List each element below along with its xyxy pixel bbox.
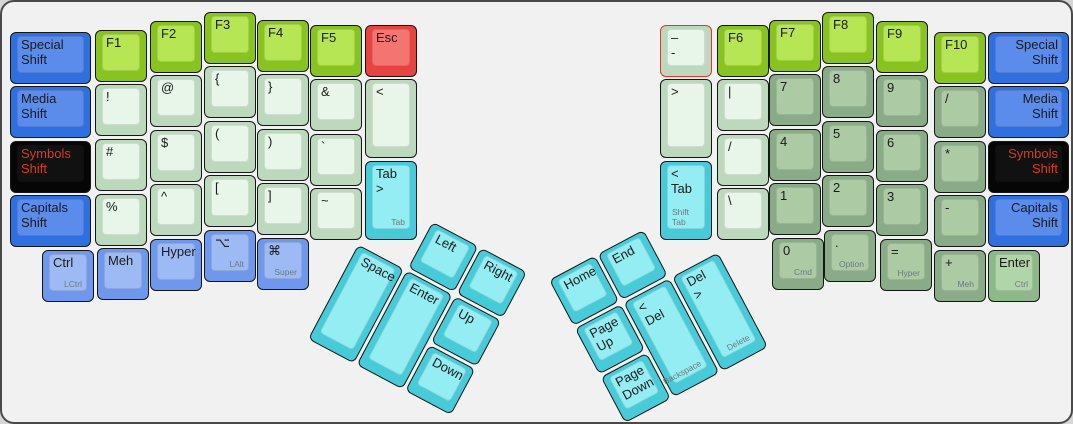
key-lbrace-label: { xyxy=(215,72,245,87)
key-f4-surface: F4 xyxy=(264,24,302,61)
key-0-sublabel: Cmd xyxy=(794,267,812,277)
key-tab-back[interactable]: < TabShift Tab xyxy=(660,161,712,240)
key-f3-label: F3 xyxy=(215,18,245,33)
key-media-shift-right[interactable]: Media Shift xyxy=(988,86,1069,138)
key-f7-label: F7 xyxy=(780,26,810,41)
key-tilde-label: ~ xyxy=(321,194,351,209)
key-exclamation-surface: ! xyxy=(102,88,140,125)
key-symbols-shift-right-surface: Symbols Shift xyxy=(995,145,1062,182)
key-tab-forward-sublabel: Tab xyxy=(391,217,405,227)
key-media-shift-left-surface: Media Shift xyxy=(17,90,84,127)
key-caret[interactable]: ^ xyxy=(150,184,202,236)
key-left-arrow-surface: Left xyxy=(419,229,470,280)
key-caret-surface: ^ xyxy=(157,188,195,225)
key-lparen[interactable]: ( xyxy=(204,121,256,173)
key-backslash-label: \ xyxy=(728,194,758,209)
key-tab-forward-label: Tab > xyxy=(376,167,406,196)
key-slash-surface: / xyxy=(724,138,762,175)
key-delete-sublabel: Delete xyxy=(725,332,751,352)
key-exclamation-label: ! xyxy=(106,90,136,105)
key-media-shift-left-label: Media Shift xyxy=(21,92,80,121)
key-at-label: @ xyxy=(161,81,191,96)
key-3-surface: 3 xyxy=(883,188,921,225)
key-f1-label: F1 xyxy=(106,36,136,51)
key-2[interactable]: 2 xyxy=(822,175,874,227)
key-pipe-label: | xyxy=(728,85,758,100)
key-tilde-surface: ~ xyxy=(317,192,355,229)
key-tab-back-sublabel: Shift Tab xyxy=(672,207,704,227)
key-4-label: 4 xyxy=(780,135,810,150)
key-0-surface: 0Cmd xyxy=(779,242,817,279)
key-equals[interactable]: =Hyper xyxy=(880,239,932,291)
key-6[interactable]: 6 xyxy=(876,130,928,182)
key-capitals-shift-right[interactable]: Capitals Shift xyxy=(988,195,1069,247)
key-9-label: 9 xyxy=(887,81,917,96)
key-f7[interactable]: F7 xyxy=(769,20,821,72)
key-lparen-label: ( xyxy=(215,127,245,142)
key-f5-label: F5 xyxy=(321,31,351,46)
key-minus-label: - xyxy=(945,201,975,216)
key-lalt[interactable]: ⌥LAlt xyxy=(204,230,256,282)
key-delete-label: Del > xyxy=(684,263,724,303)
key-f8-surface: F8 xyxy=(829,16,867,53)
key-f6-surface: F6 xyxy=(724,29,762,66)
keyboard-canvas: Special ShiftMedia ShiftSymbols ShiftCap… xyxy=(0,0,1073,424)
key-dash-selected[interactable]: – - xyxy=(660,25,712,77)
key-slash-numpad[interactable]: / xyxy=(934,86,986,138)
key-super-label: ⌘ xyxy=(268,244,298,259)
key-enter-right-sublabel: Ctrl xyxy=(1015,279,1028,289)
key-pipe-surface: | xyxy=(724,83,762,120)
key-plus[interactable]: +Meh xyxy=(934,250,986,302)
key-at[interactable]: @ xyxy=(150,75,202,127)
key-5-label: 5 xyxy=(833,127,863,142)
key-minus-surface: - xyxy=(941,199,979,236)
key-special-shift-left-surface: Special Shift xyxy=(17,36,84,73)
key-f4[interactable]: F4 xyxy=(257,20,309,72)
key-3[interactable]: 3 xyxy=(876,184,928,236)
key-tab-forward-surface: Tab >Tab xyxy=(372,165,410,229)
key-f9-label: F9 xyxy=(887,27,917,42)
key-f6[interactable]: F6 xyxy=(717,25,769,77)
key-capitals-shift-left-surface: Capitals Shift xyxy=(17,199,84,236)
key-backslash[interactable]: \ xyxy=(717,188,769,240)
key-f5[interactable]: F5 xyxy=(310,25,362,77)
key-media-shift-right-label: Media Shift xyxy=(999,92,1058,121)
key-5[interactable]: 5 xyxy=(822,121,874,173)
key-meh-left-surface: Meh xyxy=(104,252,142,289)
key-ctrl-left-label: Ctrl xyxy=(53,256,83,271)
key-less-than-label: < xyxy=(376,85,406,100)
key-symbols-shift-left-label: Symbols Shift xyxy=(21,147,80,176)
key-hyper-left-label: Hyper xyxy=(161,245,191,260)
key-6-surface: 6 xyxy=(883,134,921,171)
key-rbracket[interactable]: ] xyxy=(257,183,309,235)
key-home-surface: Home xyxy=(557,262,608,313)
key-backtick-surface: ` xyxy=(317,138,355,175)
key-pipe[interactable]: | xyxy=(717,79,769,131)
key-dollar-surface: $ xyxy=(157,134,195,171)
key-special-shift-right-label: Special Shift xyxy=(999,38,1058,67)
key-at-surface: @ xyxy=(157,79,195,116)
key-7[interactable]: 7 xyxy=(769,74,821,126)
key-7-surface: 7 xyxy=(776,78,814,115)
key-slash-numpad-label: / xyxy=(945,92,975,107)
key-page-up-surface: Page Up xyxy=(583,311,634,362)
key-7-label: 7 xyxy=(780,80,810,95)
key-f7-surface: F7 xyxy=(776,24,814,61)
key-less-than-surface: < xyxy=(372,83,410,147)
key-less-than[interactable]: < xyxy=(365,79,417,158)
key-lbrace-surface: { xyxy=(211,70,249,107)
key-dot-sublabel: Option xyxy=(839,259,864,269)
key-meh-left[interactable]: Meh xyxy=(97,248,149,300)
key-4[interactable]: 4 xyxy=(769,129,821,181)
key-rbrace-surface: } xyxy=(264,78,302,115)
key-backspace-sublabel: Backspace xyxy=(661,358,702,386)
key-end-label: End xyxy=(610,240,643,267)
key-lalt-surface: ⌥LAlt xyxy=(211,234,249,271)
key-left-arrow-label: Left xyxy=(433,232,466,259)
key-dollar-label: $ xyxy=(161,136,191,151)
key-page-down-surface: Page Down xyxy=(609,360,660,411)
key-f9-surface: F9 xyxy=(883,25,921,62)
key-plus-label: + xyxy=(945,256,975,271)
key-meh-left-label: Meh xyxy=(108,254,138,269)
key-lbracket[interactable]: [ xyxy=(204,175,256,227)
key-special-shift-right-surface: Special Shift xyxy=(995,36,1062,73)
key-1-label: 1 xyxy=(780,189,810,204)
key-0[interactable]: 0Cmd xyxy=(772,238,824,290)
key-plus-sublabel: Meh xyxy=(957,279,974,289)
key-f1[interactable]: F1 xyxy=(95,30,147,82)
key-8-surface: 8 xyxy=(829,70,867,107)
key-exclamation[interactable]: ! xyxy=(95,84,147,136)
key-8-label: 8 xyxy=(833,72,863,87)
key-media-shift-right-surface: Media Shift xyxy=(995,90,1062,127)
key-backspace-label: < Del xyxy=(636,289,676,329)
key-capitals-shift-left[interactable]: Capitals Shift xyxy=(10,195,91,247)
key-hash-surface: # xyxy=(102,143,140,180)
key-slash-label: / xyxy=(728,140,758,155)
key-9-surface: 9 xyxy=(883,79,921,116)
key-dot-label: . xyxy=(835,236,865,251)
key-f10-surface: F10 xyxy=(941,36,979,73)
key-greater-than[interactable]: > xyxy=(660,79,712,158)
key-equals-label: = xyxy=(891,245,921,260)
key-1[interactable]: 1 xyxy=(769,183,821,235)
key-home-label: Home xyxy=(562,266,595,293)
key-enter-right-surface: EnterCtrl xyxy=(995,254,1033,291)
key-0-label: 0 xyxy=(783,244,813,259)
key-f3[interactable]: F3 xyxy=(204,12,256,64)
key-rparen-label: ) xyxy=(268,135,298,150)
key-tilde[interactable]: ~ xyxy=(310,188,362,240)
key-equals-sublabel: Hyper xyxy=(897,268,920,278)
key-super-sublabel: Super xyxy=(274,267,297,277)
key-ampersand-label: & xyxy=(321,85,351,100)
key-page-down-label: Page Down xyxy=(613,363,653,403)
key-rparen-surface: ) xyxy=(264,133,302,170)
key-f3-surface: F3 xyxy=(211,16,249,53)
key-ampersand[interactable]: & xyxy=(310,79,362,131)
key-hyper-left[interactable]: Hyper xyxy=(150,239,202,291)
key-rbrace[interactable]: } xyxy=(257,74,309,126)
key-right-arrow-surface: Right xyxy=(468,254,519,305)
key-4-surface: 4 xyxy=(776,133,814,170)
key-enter-right-label: Enter xyxy=(999,256,1029,271)
key-percent-surface: % xyxy=(102,198,140,235)
key-dash-selected-surface: – - xyxy=(667,29,705,66)
key-super-surface: ⌘Super xyxy=(264,242,302,279)
key-plus-surface: +Meh xyxy=(941,254,979,291)
key-symbols-shift-right[interactable]: Symbols Shift xyxy=(988,141,1069,193)
key-ampersand-surface: & xyxy=(317,83,355,120)
key-f4-label: F4 xyxy=(268,26,298,41)
key-backtick-label: ` xyxy=(321,140,351,155)
key-f8-label: F8 xyxy=(833,18,863,33)
key-ctrl-left[interactable]: CtrlLCtrl xyxy=(42,250,94,302)
key-dash-selected-label: – - xyxy=(671,31,701,60)
key-f2-label: F2 xyxy=(161,27,191,42)
key-lalt-label: ⌥ xyxy=(215,236,245,251)
key-symbols-shift-left[interactable]: Symbols Shift xyxy=(10,141,91,193)
key-asterisk[interactable]: * xyxy=(934,141,986,193)
key-special-shift-left-label: Special Shift xyxy=(21,38,80,67)
key-equals-surface: =Hyper xyxy=(887,243,925,280)
key-capitals-shift-right-label: Capitals Shift xyxy=(999,201,1058,230)
key-special-shift-left[interactable]: Special Shift xyxy=(10,32,91,84)
key-enter-right[interactable]: EnterCtrl xyxy=(988,250,1040,302)
key-slash[interactable]: / xyxy=(717,134,769,186)
key-capitals-shift-left-label: Capitals Shift xyxy=(21,201,80,230)
key-ctrl-left-surface: CtrlLCtrl xyxy=(49,254,87,291)
key-capitals-shift-right-surface: Capitals Shift xyxy=(995,199,1062,236)
key-f8[interactable]: F8 xyxy=(822,12,874,64)
key-hyper-left-surface: Hyper xyxy=(157,243,195,280)
key-lalt-sublabel: LAlt xyxy=(229,259,244,269)
key-8[interactable]: 8 xyxy=(822,66,874,118)
key-asterisk-label: * xyxy=(945,147,975,162)
key-minus[interactable]: - xyxy=(934,195,986,247)
key-percent-label: % xyxy=(106,200,136,215)
key-lbrace[interactable]: { xyxy=(204,66,256,118)
key-f10[interactable]: F10 xyxy=(934,32,986,84)
key-slash-numpad-surface: / xyxy=(941,90,979,127)
key-percent[interactable]: % xyxy=(95,194,147,246)
key-3-label: 3 xyxy=(887,190,917,205)
key-lbracket-label: [ xyxy=(215,181,245,196)
key-right-arrow-label: Right xyxy=(481,258,514,285)
key-backslash-surface: \ xyxy=(724,192,762,229)
key-symbols-shift-right-label: Symbols Shift xyxy=(999,147,1058,176)
key-media-shift-left[interactable]: Media Shift xyxy=(10,86,91,138)
key-backtick[interactable]: ` xyxy=(310,134,362,186)
key-9[interactable]: 9 xyxy=(876,75,928,127)
key-enter-thumb-label: Enter xyxy=(407,281,440,308)
key-f2[interactable]: F2 xyxy=(150,21,202,73)
key-rbrace-label: } xyxy=(268,80,298,95)
key-end-surface: End xyxy=(606,237,657,288)
key-tab-forward[interactable]: Tab >Tab xyxy=(365,161,417,240)
key-dollar[interactable]: $ xyxy=(150,130,202,182)
key-greater-than-label: > xyxy=(671,85,701,100)
key-1-surface: 1 xyxy=(776,187,814,224)
key-tab-back-label: < Tab xyxy=(671,167,701,196)
key-caret-label: ^ xyxy=(161,190,191,205)
key-dot-surface: .Option xyxy=(831,234,869,271)
key-f10-label: F10 xyxy=(945,38,975,53)
key-up-arrow-surface: Up xyxy=(442,303,493,354)
key-page-up-label: Page Up xyxy=(587,315,627,355)
key-greater-than-surface: > xyxy=(667,83,705,147)
key-f5-surface: F5 xyxy=(317,29,355,66)
key-2-surface: 2 xyxy=(829,179,867,216)
key-down-arrow-label: Down xyxy=(430,355,463,382)
key-down-arrow-surface: Down xyxy=(416,352,467,403)
key-special-shift-right[interactable]: Special Shift xyxy=(988,32,1069,84)
key-5-surface: 5 xyxy=(829,125,867,162)
key-esc-label: Esc xyxy=(376,31,406,46)
key-rparen[interactable]: ) xyxy=(257,129,309,181)
key-f2-surface: F2 xyxy=(157,25,195,62)
key-tab-back-surface: < TabShift Tab xyxy=(667,165,705,229)
key-rbracket-surface: ] xyxy=(264,187,302,224)
key-up-arrow-label: Up xyxy=(455,307,488,334)
key-esc-surface: Esc xyxy=(372,29,410,66)
key-esc[interactable]: Esc xyxy=(365,25,417,77)
key-space-label: Space xyxy=(358,255,391,282)
key-lbracket-surface: [ xyxy=(211,179,249,216)
key-rbracket-label: ] xyxy=(268,189,298,204)
key-hash[interactable]: # xyxy=(95,139,147,191)
key-super[interactable]: ⌘Super xyxy=(257,238,309,290)
key-f9[interactable]: F9 xyxy=(876,21,928,73)
key-ctrl-left-sublabel: LCtrl xyxy=(64,279,82,289)
key-lparen-surface: ( xyxy=(211,125,249,162)
key-asterisk-surface: * xyxy=(941,145,979,182)
key-hash-label: # xyxy=(106,145,136,160)
key-symbols-shift-left-surface: Symbols Shift xyxy=(17,145,84,182)
key-6-label: 6 xyxy=(887,136,917,151)
key-f1-surface: F1 xyxy=(102,34,140,71)
key-dot[interactable]: .Option xyxy=(824,230,876,282)
key-2-label: 2 xyxy=(833,181,863,196)
key-f6-label: F6 xyxy=(728,31,758,46)
